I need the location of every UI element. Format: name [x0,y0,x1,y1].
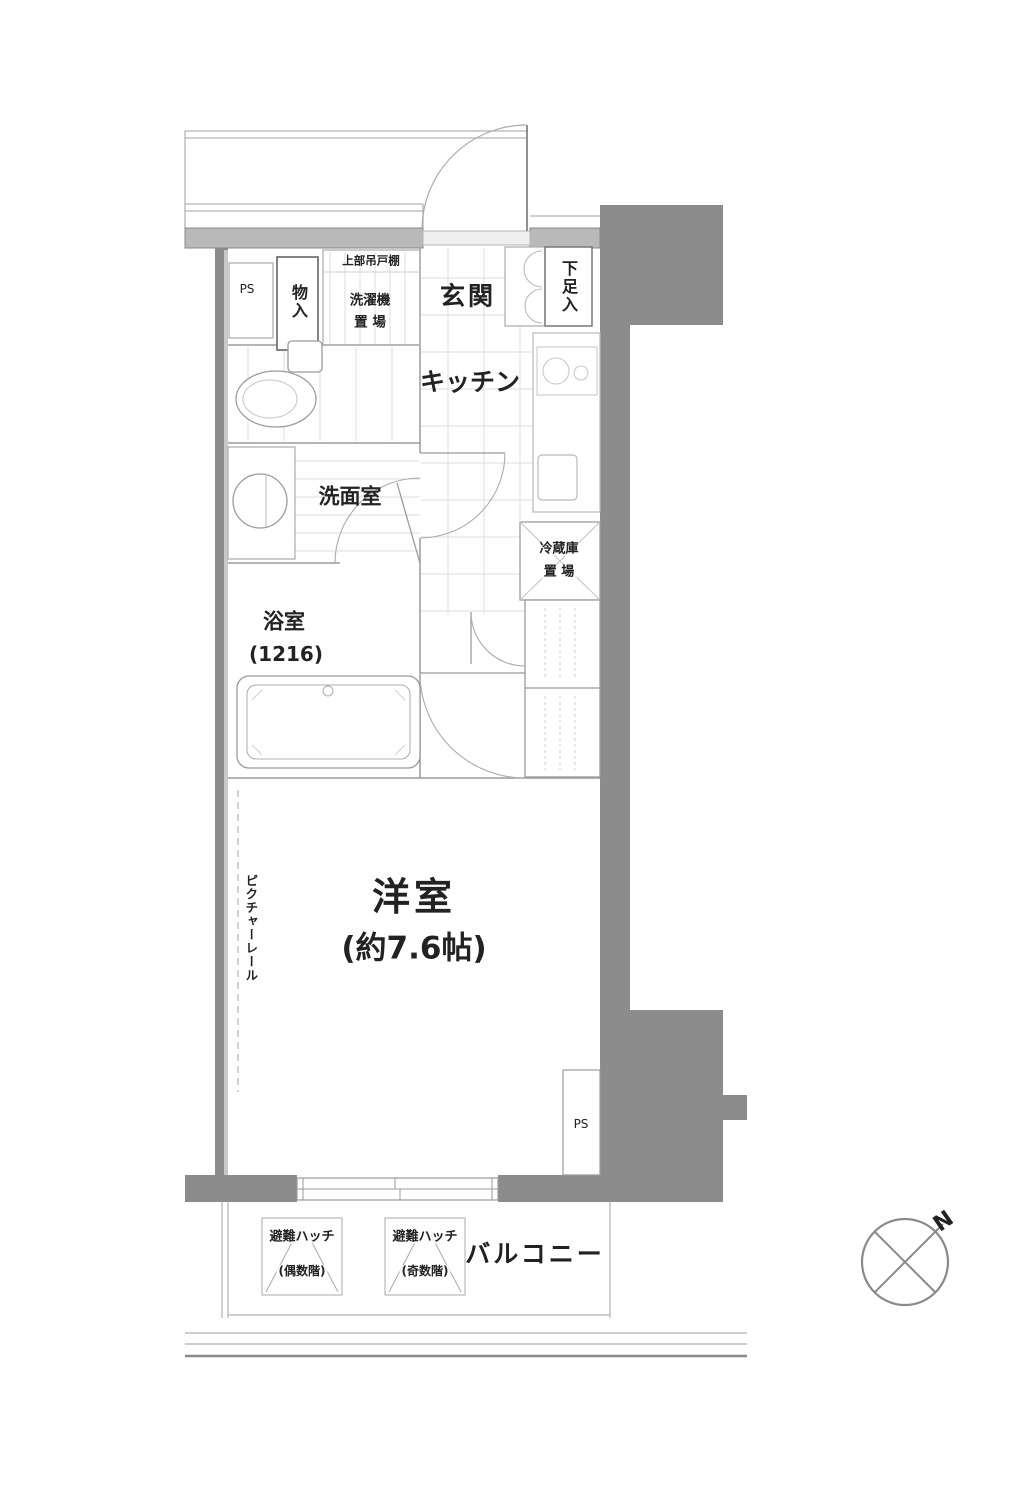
floorplan: PS 物入 上部吊戸棚 洗濯機 置 場 玄関 下足入 キッチン 洗面室 浴室 (… [0,0,1020,1485]
label-hatch1-floor: (偶数階) [277,1265,328,1277]
label-hatch2: 避難ハッチ [390,1231,459,1244]
label-storage: 物入 [290,284,306,320]
label-balcony: バルコニー [465,1242,605,1267]
label-hatch2-floor: (奇数階) [400,1265,451,1277]
label-shoe-box: 下足入 [560,260,576,314]
label-bath-line2: (1216) [249,644,323,664]
label-kitchen: キッチン [420,370,520,395]
label-ps-top: PS [240,283,255,295]
label-washer-line2: 置 場 [354,316,386,330]
label-main-room-size: (約7.6帖) [341,934,486,965]
label-upper-cabinet: 上部吊戸棚 [342,255,400,267]
label-main-room: 洋室 [372,878,456,916]
label-fridge-line1: 冷蔵庫 [537,543,580,556]
label-fridge-line2: 置 場 [542,566,577,579]
compass-icon [862,1219,948,1305]
label-genkan: 玄関 [440,284,496,309]
label-picture-rail: ピクチャーレール [244,874,257,982]
label-washer-line1: 洗濯機 [350,294,391,308]
label-hatch1: 避難ハッチ [267,1231,336,1244]
label-washroom: 洗面室 [319,487,382,508]
label-bath-line1: 浴室 [263,612,305,633]
label-ps-bottom: PS [574,1118,589,1130]
